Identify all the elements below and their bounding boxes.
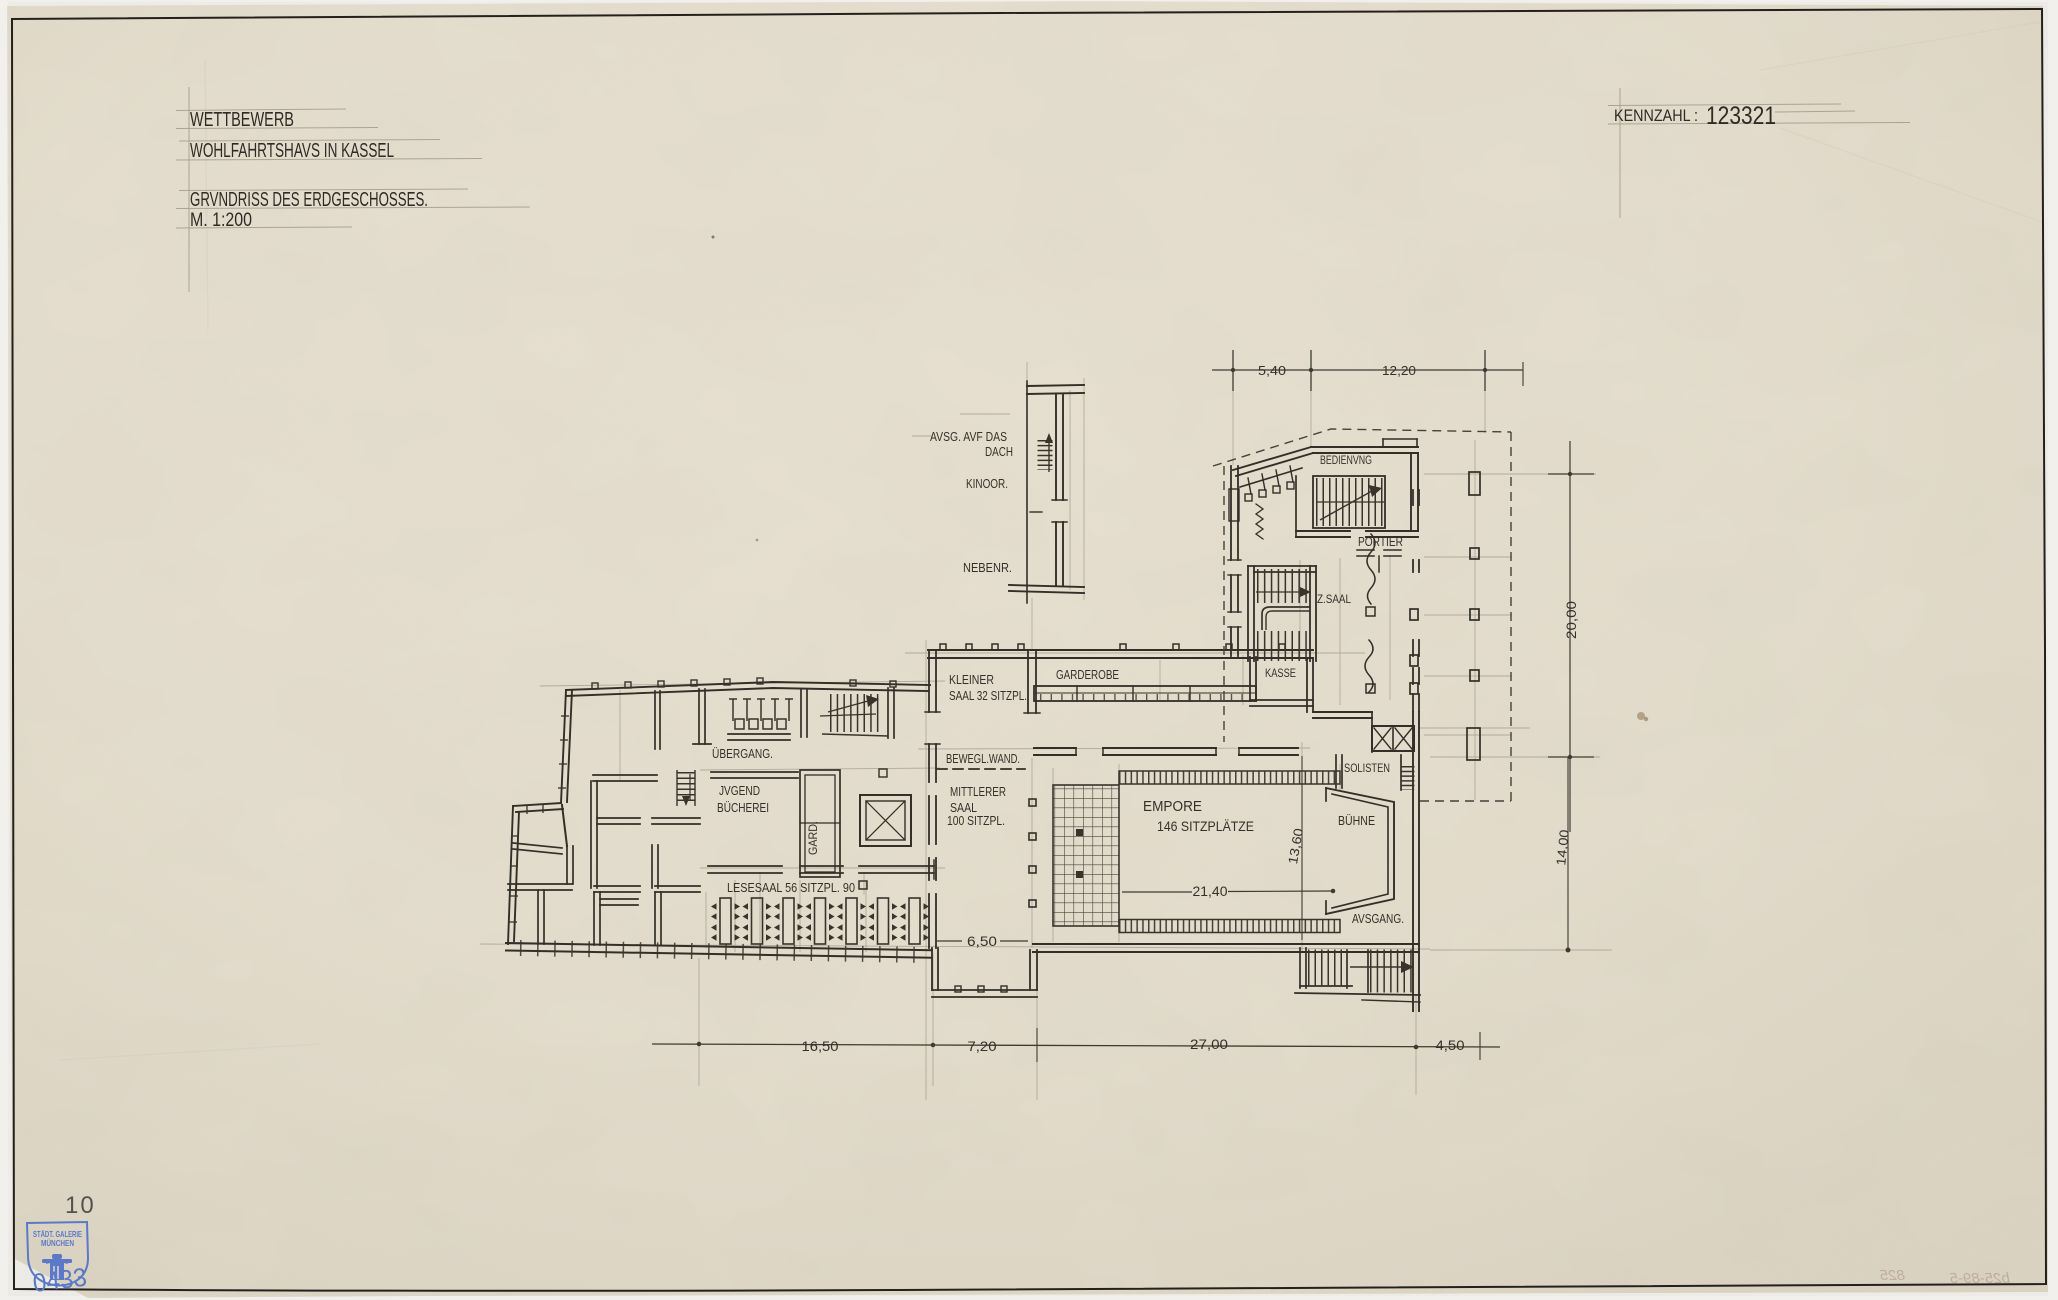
svg-text:KINOOR.: KINOOR. bbox=[966, 476, 1008, 491]
svg-text:GARDEROBE: GARDEROBE bbox=[1056, 668, 1119, 682]
svg-text:AVSG. AVF DAS: AVSG. AVF DAS bbox=[930, 429, 1007, 444]
svg-text:7,20: 7,20 bbox=[968, 1039, 997, 1054]
svg-text:ÜBERGANG.: ÜBERGANG. bbox=[712, 747, 773, 761]
svg-text:16,50: 16,50 bbox=[802, 1039, 839, 1054]
svg-text:b25-89-5: b25-89-5 bbox=[1949, 1270, 2010, 1287]
svg-text:123321: 123321 bbox=[1706, 102, 1776, 130]
svg-text:PORTIER: PORTIER bbox=[1358, 535, 1403, 549]
svg-text:GRVNDRISS DES ERDGESCHOSSES.: GRVNDRISS DES ERDGESCHOSSES. bbox=[190, 189, 428, 211]
svg-text:BÜHNE: BÜHNE bbox=[1338, 814, 1375, 828]
svg-text:NEBENR.: NEBENR. bbox=[963, 560, 1012, 575]
svg-text:21,40: 21,40 bbox=[1193, 884, 1228, 899]
svg-text:6,50: 6,50 bbox=[967, 934, 997, 949]
svg-text:4,50: 4,50 bbox=[1436, 1038, 1465, 1053]
svg-text:DACH: DACH bbox=[985, 444, 1013, 459]
svg-text:M. 1:200: M. 1:200 bbox=[190, 210, 252, 231]
svg-text:100 SITZPL.: 100 SITZPL. bbox=[947, 814, 1005, 828]
svg-text:EMPORE: EMPORE bbox=[1143, 798, 1202, 815]
svg-text:GARD.: GARD. bbox=[806, 821, 820, 855]
svg-text:Z.SAAL: Z.SAAL bbox=[1317, 592, 1351, 606]
svg-text:BEDIENVNG: BEDIENVNG bbox=[1320, 455, 1372, 467]
svg-text:KASSE: KASSE bbox=[1265, 666, 1296, 680]
svg-text:SAAL: SAAL bbox=[950, 801, 977, 815]
svg-text:825: 825 bbox=[1879, 1267, 1905, 1284]
svg-text:WETTBEWERB: WETTBEWERB bbox=[190, 109, 294, 131]
svg-text:AVSGANG.: AVSGANG. bbox=[1352, 912, 1404, 926]
svg-text:WOHLFAHRTSHAVS IN KASSEL: WOHLFAHRTSHAVS IN KASSEL bbox=[190, 140, 394, 162]
svg-text:10: 10 bbox=[65, 1192, 96, 1219]
svg-text:SAAL 32 SITZPL.: SAAL 32 SITZPL. bbox=[949, 689, 1027, 703]
svg-text:12,20: 12,20 bbox=[1382, 363, 1416, 378]
svg-text:JVGEND: JVGEND bbox=[719, 784, 760, 798]
svg-text:5,40: 5,40 bbox=[1258, 363, 1286, 378]
svg-text:SOLISTEN: SOLISTEN bbox=[1344, 763, 1390, 775]
svg-text:MITTLERER: MITTLERER bbox=[950, 785, 1006, 799]
svg-text:27,00: 27,00 bbox=[1190, 1037, 1228, 1052]
svg-text:20,00: 20,00 bbox=[1563, 601, 1579, 639]
svg-text:MÜNCHEN: MÜNCHEN bbox=[41, 1238, 74, 1248]
svg-text:146 SITZPLÄTZE: 146 SITZPLÄTZE bbox=[1157, 818, 1254, 834]
svg-text:BÜCHEREI: BÜCHEREI bbox=[717, 801, 769, 815]
svg-text:KLEINER: KLEINER bbox=[949, 673, 994, 687]
svg-text:LESESAAL 56 SITZPL. 90: LESESAAL 56 SITZPL. 90 bbox=[727, 880, 855, 895]
svg-text:KENNZAHL :: KENNZAHL : bbox=[1614, 106, 1698, 125]
svg-text:BEWEGL.WAND.: BEWEGL.WAND. bbox=[946, 752, 1020, 766]
